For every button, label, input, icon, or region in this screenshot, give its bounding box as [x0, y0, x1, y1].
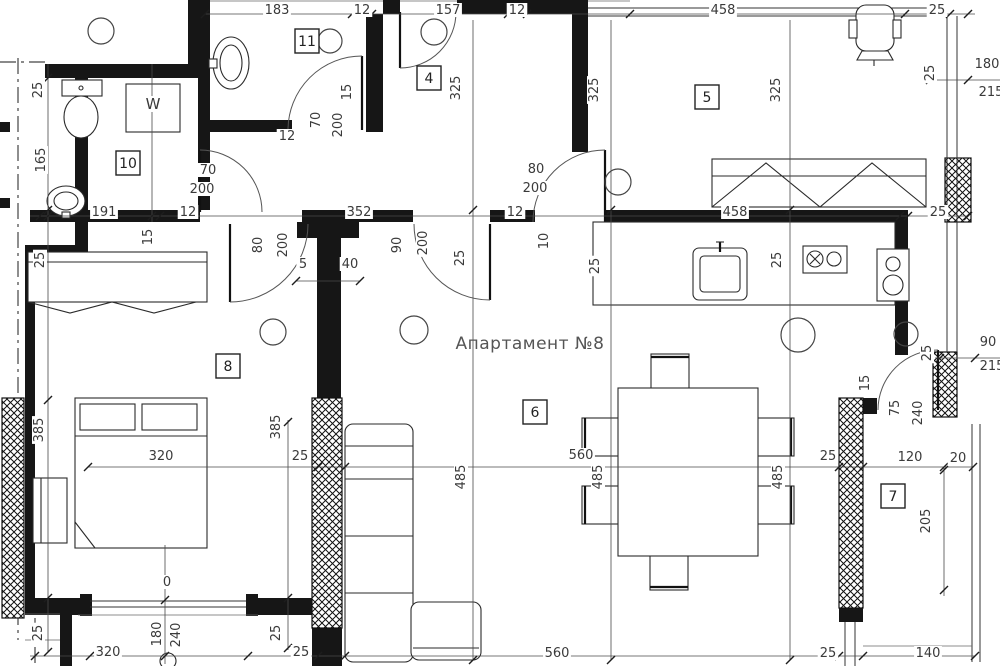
svg-text:12: 12: [180, 205, 197, 220]
dimension-label: 25: [588, 256, 603, 277]
dimension-label: 25: [31, 623, 46, 644]
svg-text:200: 200: [523, 181, 548, 196]
svg-text:215: 215: [979, 85, 1000, 100]
svg-text:25: 25: [820, 646, 837, 661]
svg-text:180: 180: [150, 622, 165, 647]
dimension-label: 0: [160, 575, 173, 590]
dimension-label: 560: [543, 646, 571, 661]
svg-text:200: 200: [276, 233, 291, 258]
dimension-label: 70: [309, 110, 324, 131]
room-number-box: 11: [295, 29, 319, 53]
dimension-label: 200: [331, 111, 346, 139]
svg-text:485: 485: [771, 465, 786, 490]
svg-text:120: 120: [898, 450, 923, 465]
svg-text:25: 25: [588, 258, 603, 275]
dimension-label: 560: [567, 448, 595, 463]
dimension-label: 215: [978, 359, 1000, 374]
dimension-label: 25: [269, 623, 284, 644]
svg-text:12: 12: [279, 129, 296, 144]
dimension-label: 12: [507, 3, 528, 18]
svg-text:75: 75: [888, 400, 903, 417]
dimension-label: 320: [94, 645, 122, 660]
svg-text:70: 70: [309, 112, 324, 129]
svg-text:240: 240: [911, 401, 926, 426]
dimension-label: 200: [188, 182, 216, 197]
dimension-label: 15: [340, 82, 355, 103]
svg-text:200: 200: [190, 182, 215, 197]
dimension-label: 320: [147, 449, 175, 464]
svg-text:25: 25: [33, 252, 48, 269]
svg-text:11: 11: [298, 34, 316, 50]
svg-text:90: 90: [390, 237, 405, 254]
dimension-label: 205: [919, 507, 934, 535]
dimension-label: 90: [978, 335, 999, 350]
dimension-label: 25: [290, 449, 311, 464]
svg-text:458: 458: [711, 3, 736, 18]
svg-text:10: 10: [119, 156, 137, 172]
svg-text:191: 191: [92, 205, 117, 220]
svg-text:325: 325: [769, 78, 784, 103]
svg-text:25: 25: [820, 449, 837, 464]
svg-text:12: 12: [509, 3, 526, 18]
dimension-label: 12: [277, 129, 298, 144]
svg-text:560: 560: [545, 646, 570, 661]
dimension-label: W: [146, 95, 161, 113]
svg-text:25: 25: [923, 65, 938, 82]
svg-text:20: 20: [950, 451, 967, 466]
dimension-label: 180: [150, 620, 165, 648]
svg-text:10: 10: [537, 233, 552, 250]
room-number-box: 10: [116, 151, 140, 175]
svg-text:200: 200: [331, 113, 346, 138]
svg-text:70: 70: [200, 163, 217, 178]
svg-text:180: 180: [975, 57, 1000, 72]
svg-text:90: 90: [980, 335, 997, 350]
svg-text:325: 325: [587, 78, 602, 103]
dimension-label: 25: [33, 250, 48, 271]
svg-text:385: 385: [269, 415, 284, 440]
room5-wardrobe: [712, 159, 926, 207]
svg-text:140: 140: [916, 646, 941, 661]
room-number-box: 5: [695, 85, 719, 109]
svg-text:80: 80: [528, 162, 545, 177]
dimension-label: 12: [505, 205, 526, 220]
kitchen-sink: [693, 242, 747, 300]
svg-text:7: 7: [889, 489, 898, 505]
svg-text:320: 320: [149, 449, 174, 464]
dimension-label: 385: [269, 413, 284, 441]
svg-text:25: 25: [929, 3, 946, 18]
dimension-label: 80: [251, 235, 266, 256]
svg-text:4: 4: [425, 71, 434, 87]
svg-text:25: 25: [293, 645, 310, 660]
dimension-label: 25: [818, 646, 839, 661]
svg-text:40: 40: [342, 257, 359, 272]
floor-plan: 1831215712458251911235212458252516525385…: [0, 0, 1000, 666]
dimension-label: 200: [416, 229, 431, 257]
svg-text:240: 240: [169, 623, 184, 648]
dimension-label: 200: [276, 231, 291, 259]
svg-text:325: 325: [449, 76, 464, 101]
dimension-label: 325: [449, 74, 464, 102]
dimension-label: 458: [721, 205, 749, 220]
apartment-title: Апартамент №8: [456, 334, 605, 354]
svg-text:25: 25: [453, 250, 468, 267]
dimension-label: 25: [453, 248, 468, 269]
dimension-label: 25: [291, 645, 312, 660]
svg-text:157: 157: [436, 3, 461, 18]
dimension-label: 191: [90, 205, 118, 220]
dimension-label: 325: [769, 76, 784, 104]
svg-text:0: 0: [163, 575, 171, 590]
nightstand: [33, 478, 67, 543]
kitchen-appliance: [877, 249, 909, 301]
dimension-label: 200: [521, 181, 549, 196]
svg-text:15: 15: [141, 229, 156, 246]
svg-text:12: 12: [507, 205, 524, 220]
svg-text:485: 485: [591, 465, 606, 490]
room-number-box: 7: [881, 484, 905, 508]
dimension-label: 325: [587, 76, 602, 104]
dimension-label: 180: [973, 57, 1000, 72]
bed: [75, 398, 207, 548]
dimension-label: 25: [927, 3, 948, 18]
dimension-label: 240: [911, 399, 926, 427]
svg-text:5: 5: [299, 257, 307, 272]
dimension-label: 10: [537, 231, 552, 252]
svg-text:80: 80: [251, 237, 266, 254]
dimension-label: 485: [454, 463, 469, 491]
svg-text:205: 205: [919, 509, 934, 534]
dimension-label: 458: [709, 3, 737, 18]
dimension-label: 183: [263, 3, 291, 18]
dimension-label: 25: [928, 205, 949, 220]
svg-text:12: 12: [354, 3, 371, 18]
svg-text:8: 8: [224, 359, 233, 375]
dimension-label: 352: [345, 205, 373, 220]
dimension-label: 215: [977, 85, 1000, 100]
svg-text:485: 485: [454, 465, 469, 490]
room-number-box: 8: [216, 354, 240, 378]
dimension-label: 15: [858, 373, 873, 394]
dimension-label: 485: [591, 463, 606, 491]
dimension-label: 140: [914, 646, 942, 661]
dimension-label: 485: [771, 463, 786, 491]
svg-text:6: 6: [531, 405, 540, 421]
dimension-label: 70: [198, 163, 219, 178]
dimension-label: 25: [31, 80, 46, 101]
svg-text:458: 458: [723, 205, 748, 220]
svg-text:215: 215: [980, 359, 1000, 374]
cooktop: [803, 246, 847, 273]
svg-text:15: 15: [858, 375, 873, 392]
svg-text:5: 5: [703, 90, 712, 106]
svg-text:25: 25: [31, 82, 46, 99]
dimension-label: 5: [296, 257, 309, 272]
svg-text:320: 320: [96, 645, 121, 660]
dimension-label: 165: [34, 146, 49, 174]
svg-text:165: 165: [34, 148, 49, 173]
dimension-label: 12: [352, 3, 373, 18]
dimension-label: 120: [896, 450, 924, 465]
dimension-label: 40: [340, 257, 361, 272]
svg-text:15: 15: [340, 84, 355, 101]
svg-text:W: W: [146, 95, 161, 113]
svg-text:352: 352: [347, 205, 372, 220]
svg-text:25: 25: [31, 625, 46, 642]
dimension-label: 385: [32, 416, 47, 444]
dimension-label: 25: [770, 250, 785, 271]
room-number-box: 4: [417, 66, 441, 90]
svg-text:25: 25: [920, 345, 935, 362]
dimension-label: 25: [818, 449, 839, 464]
dimension-label: 15: [141, 227, 156, 248]
dimension-label: 240: [169, 621, 184, 649]
dimension-label: 12: [178, 205, 199, 220]
svg-text:200: 200: [416, 231, 431, 256]
dimension-label: 25: [923, 63, 938, 84]
svg-text:25: 25: [930, 205, 947, 220]
dimension-label: 157: [434, 3, 462, 18]
svg-text:385: 385: [32, 418, 47, 443]
dimension-label: 90: [390, 235, 405, 256]
dimension-label: 20: [948, 451, 969, 466]
svg-text:560: 560: [569, 448, 594, 463]
svg-text:183: 183: [265, 3, 290, 18]
room-number-box: 6: [523, 400, 547, 424]
svg-text:25: 25: [770, 252, 785, 269]
dimension-label: 80: [526, 162, 547, 177]
dimension-label: 75: [888, 398, 903, 419]
svg-text:25: 25: [269, 625, 284, 642]
svg-text:25: 25: [292, 449, 309, 464]
dimension-label: 25: [920, 343, 935, 364]
